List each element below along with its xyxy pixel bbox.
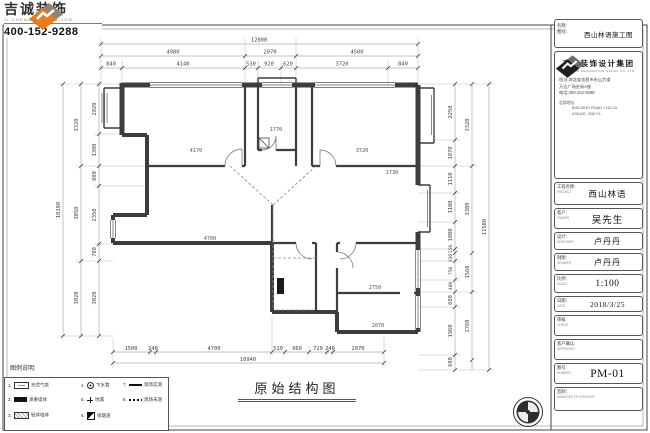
dim-label: 3720: [336, 62, 349, 68]
dim-label: 3380: [465, 203, 471, 216]
dim-label: 330: [448, 254, 454, 262]
date-value: 2018/3/25: [575, 297, 640, 311]
legend-item-label: 排烟道: [97, 413, 111, 418]
dim-label: 4500: [351, 50, 364, 56]
legend-item-label: 天然气表: [31, 383, 49, 388]
dim-label: 3320: [465, 119, 471, 132]
dim-label: 240: [148, 346, 158, 352]
drawing-sheet: 12000 4980 2070 4500 840 4140 530 920 62…: [0, 0, 650, 433]
dim-label: 510: [273, 346, 283, 352]
dim-label: 840: [106, 62, 116, 68]
dim-label: 920: [264, 62, 274, 68]
dim-label: 600: [448, 295, 454, 305]
legend-item: 5.地漏: [81, 397, 104, 405]
dim-label: 4140: [177, 62, 190, 68]
solid-line-symbol: [129, 384, 142, 386]
flue-symbol: [87, 412, 95, 420]
legend-item-label: 承重墙体: [29, 397, 47, 402]
dim-label: 12000: [251, 38, 267, 44]
titleblock-row-check: 审核: CHECK: [554, 315, 643, 336]
dim-label: 1560: [465, 266, 471, 279]
legend-item: 6.排烟道: [81, 412, 111, 420]
legend-item-label: 现场实测: [144, 382, 162, 387]
dim-label: 620: [283, 62, 293, 68]
gas-meter-symbol: [14, 382, 29, 389]
titleblock-company-box: 吉诚装饰设计集团 JI CHENG DECORATION GROUP CO.,L…: [554, 51, 643, 179]
name-box-label2: 图别:: [557, 29, 567, 35]
row-label: 工程名称:: [557, 184, 575, 189]
project-value: 西山林语: [575, 183, 640, 204]
titleblock-row-date: 日期: DATE 2018/3/25: [554, 296, 643, 312]
sheet-frame: [3, 25, 647, 430]
legend-item: 1.天然气表: [8, 382, 49, 390]
dim-label: 840: [398, 62, 408, 68]
dim-label: 1070: [448, 147, 454, 160]
dim-label: 2020: [92, 103, 98, 116]
dim-label: 2350: [92, 209, 98, 222]
manager-value: [575, 388, 640, 410]
dim-label: 720: [313, 346, 323, 352]
dim-label: 530: [246, 62, 256, 68]
dim-label: 960: [292, 346, 302, 352]
dim-label: 1960: [448, 325, 454, 338]
row-label: 客户:: [557, 210, 567, 215]
room-label: 2070: [372, 323, 385, 329]
titleblock-row-drawer: 制图: DRAWER 卢丹丹: [554, 253, 643, 271]
legend-item-label: 轻体墙体: [31, 413, 49, 418]
drawer-value: 卢丹丹: [575, 254, 640, 270]
dim-label: 800: [92, 171, 98, 181]
titleblock-row-project: 工程名称: PROJECT 西山林语: [554, 182, 643, 205]
drawing-title: 原始结构图: [238, 378, 356, 402]
dim-label: 3850: [74, 207, 80, 220]
dim-label: 750: [448, 267, 454, 275]
dim-label: 1500: [125, 346, 138, 352]
dim-label: 600: [448, 357, 454, 367]
titleblock-row-designer: 设计: DESIGNER 卢丹丹: [554, 232, 643, 250]
row-label: 审核:: [557, 317, 567, 322]
dim-label: 3020: [92, 292, 98, 305]
titleblock-row-owner: 客户: OWNER 吴先生: [554, 208, 643, 229]
dim-label: 4700: [208, 346, 221, 352]
room-label: 1770: [270, 127, 283, 133]
company-tel: 电话:400-152-9288: [559, 90, 638, 97]
room-label: 2750: [369, 285, 382, 291]
titleblock-row-manager: 监制: MANAGER OF INTERIOR: [554, 387, 643, 411]
dash-line-symbol: [129, 399, 142, 401]
name-box-labels: 名称: 图别:: [557, 23, 567, 35]
room-label: 4170: [190, 148, 203, 154]
dim-label: 4980: [167, 50, 180, 56]
dimension-chain-lines: [61, 42, 491, 372]
scale-value: 1:100: [575, 275, 640, 292]
row-label: 监制:: [557, 389, 567, 394]
brand-diamond-icon: [28, 2, 64, 32]
name-box-value: 西山林语施工图: [577, 20, 640, 47]
legend-item: 7.现场实测: [123, 382, 162, 390]
floor-plan-canvas: 12000 4980 2070 4500 840 4140 530 920 62…: [0, 0, 650, 433]
titleblock-row-number: 图号: NUMBER PM-01: [554, 363, 643, 384]
dim-label: 150: [448, 245, 454, 253]
row-label: 日期:: [557, 298, 567, 303]
room-dimension-labels: 4170 1770 3720 4700 2750 2070 1730: [190, 127, 399, 329]
dim-label: 240: [325, 346, 335, 352]
titleblock-row-approved: 客户确认: APPROVED: [554, 339, 643, 360]
company-branch-lines: 总部地址: BUILDING ROAD 1 NO.15 A BLDG. 2ND …: [559, 101, 638, 118]
legend-item-label: 下水管: [96, 383, 110, 388]
branch-line-2: A BLDG. 2ND FL.: [559, 112, 638, 118]
titleblock-row-scale: 比例: SCALE 1:100: [554, 274, 643, 293]
row-label: 客户确认:: [557, 341, 575, 346]
company-diamond-icon: [555, 54, 585, 80]
dim-label: 700: [92, 247, 98, 257]
dim-label: 10190: [56, 202, 62, 218]
dim-label: 1300: [92, 144, 98, 157]
titleblock-name-box: 名称: 图别: 西山林语施工图: [554, 19, 643, 48]
drawing-number-value: PM-01: [575, 364, 640, 383]
owner-value: 吴先生: [575, 209, 640, 228]
company-logo-block: 吉诚装饰 JI CHENG DECORATION 400-152-9288: [4, 2, 102, 38]
room-label: 4700: [204, 236, 217, 242]
row-label: 比例:: [557, 276, 567, 281]
interior-walls: [147, 85, 418, 332]
windows: [102, 83, 434, 329]
dim-label: 2070: [352, 346, 365, 352]
designer-value: 卢丹丹: [575, 233, 640, 249]
legend-item-label: 现场未测: [144, 397, 162, 402]
row-label: 设计:: [557, 234, 567, 239]
approved-value: [575, 340, 640, 359]
dim-label: 11580: [482, 219, 488, 235]
room-label: 1730: [386, 170, 399, 176]
room-label: 3720: [356, 148, 369, 154]
dim-label: 3020: [74, 292, 80, 305]
check-value: [575, 316, 640, 335]
legend-item: 8.现场未测: [123, 397, 162, 405]
row-label: 制图:: [557, 255, 567, 260]
load-wall-symbol: [14, 397, 27, 402]
dim-label: 10940: [240, 357, 256, 363]
light-wall-symbol: [14, 412, 29, 419]
legend-item: 2.承重墙体: [8, 397, 47, 405]
dim-label: 1110: [448, 173, 454, 186]
legend-title: 图例说明:: [10, 363, 36, 372]
dim-label: 2070: [264, 50, 277, 56]
dim-label: 3320: [74, 119, 80, 132]
dim-label: 1080: [448, 229, 454, 242]
dim-label: 1180: [448, 201, 454, 214]
legend-item: 3.轻体墙体: [8, 412, 49, 420]
floor-drain-symbol: [87, 397, 93, 403]
drain-pipe-symbol: [87, 382, 94, 389]
dim-label: 480: [448, 282, 454, 290]
dim-label: 2250: [448, 106, 454, 119]
legend-item-label: 地漏: [95, 397, 104, 402]
row-label: 图号:: [557, 365, 567, 370]
dim-label: 2760: [465, 320, 471, 333]
legend-box: 1.天然气表 2.承重墙体 3.轻体墙体 4.下水管 5.地漏 6.排烟道 7.…: [4, 377, 169, 431]
legend-item: 4.下水管: [81, 382, 110, 390]
compass-emblem: [514, 398, 543, 427]
